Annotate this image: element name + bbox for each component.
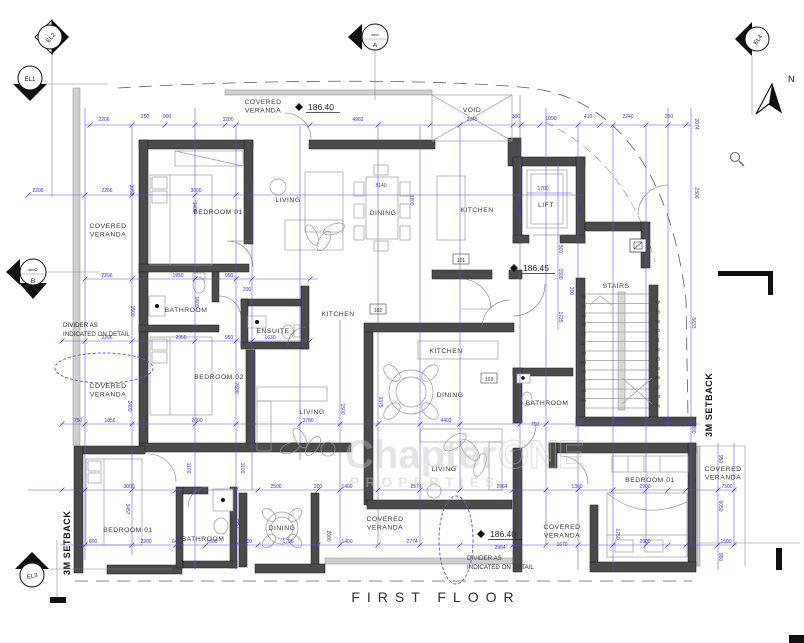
dimension-label: 2950 [175,335,186,341]
room-label: DINING [370,210,397,217]
room-label: DINING [437,392,464,399]
stair-step-number: 10 [581,350,587,355]
room-label: COVEREDVERANDA [244,99,281,115]
dimension-label: 2074 [693,118,699,129]
room-label: COVEREDVERANDA [89,223,126,239]
dimension-label: 2306 [693,187,699,198]
stair-step-number: 13 [581,322,587,327]
dimension-label: 1100 [185,463,191,474]
dimension-label: 250 [141,114,150,120]
dimension-label: 1750 [614,528,620,539]
dimension-labels: 2206250900320049622345300109041022402502… [32,114,732,561]
divider-note: DIVIDER AS [467,555,502,562]
dimension-label: 800 [89,539,98,545]
watermark-part2: ONE [498,433,585,477]
dimension-label: 1600 [193,296,199,307]
room-label: BEDROOM 02 [194,374,244,381]
stair-step-number: 04 [655,403,661,408]
stair-step-number: 08 [581,369,587,374]
section-letter: A [373,42,378,49]
divider-note: INDICATED ON DETAIL [63,331,130,338]
room-label: BEDROOM 01 [103,527,153,534]
dimension-label: 950 [717,553,723,562]
dimension-label: 2000 [191,418,202,424]
setback-label: 3M SETBACK [62,510,72,575]
dimension-label: 200 [314,484,323,490]
stair-step-number: 12 [581,332,587,337]
room-tag: 101 [457,258,466,264]
dimension-label: 750 [576,202,582,211]
dimension-label: 1400 [341,539,352,545]
dimension-label: 500 [557,245,563,254]
stair-step-number: 14 [581,313,587,318]
dimension-label: 1800 [690,422,696,433]
dimension-label: 1500 [720,539,731,545]
divider-note: DIVIDER AS [63,322,98,329]
dimension-label: 3780 [302,418,313,424]
elevation-marker-el2: EL2 [35,20,69,197]
dimension-label: 3000 [190,188,201,194]
stair-step-number: 18 [655,309,661,314]
dimension-label: 1725 [557,311,563,322]
dimension-label: 300 [512,114,521,120]
dimension-label: 1000 [206,539,217,545]
dimension-label: 950 [717,455,723,464]
dimension-label: 750 [74,418,83,424]
dimension-label: 1630 [264,335,275,341]
dimension-label: 3000 [123,484,134,490]
room-tag: 102 [374,308,383,314]
dimension-label: 2650 [614,418,625,424]
dimension-label: 2206 [101,273,112,279]
room-label: KITCHEN [460,207,493,214]
dimension-label: 2240 [622,114,633,120]
room-label: ENSUITE [257,328,290,335]
dimension-label: 3457 [124,503,130,514]
north-label: N [788,74,795,84]
dimension-label: 250 [662,418,671,424]
stair-step-number: 15 [581,303,587,308]
dimension-label: 900 [244,539,253,545]
room-label: BATHROOM [165,307,208,314]
dimension-label: 640 [172,539,181,545]
room-label: KITCHEN [321,311,354,318]
stair-step-number: 09 [581,360,587,365]
dimension-label: 2206 [32,188,43,194]
stair-step-number: 19 [655,319,661,324]
room-label: VOID [463,107,482,114]
section-label: sect [371,32,379,37]
stairs-treads [585,292,652,410]
dimension-label: 6050 [717,500,723,511]
elevation-marker-el1: EL1 [13,66,108,101]
dimension-label: 1360 [571,484,582,490]
watermark-line2: PROPERTIES [350,474,500,490]
level-value: 186.40 [490,529,516,539]
dimension-label: 1500 [557,268,563,279]
room-label: LIVING [275,197,300,204]
section-marker-a: sect A [348,24,388,100]
stair-step-number: 06 [581,388,587,393]
dimension-label: 2506 [270,484,281,490]
dimension-label: 2000 [325,530,331,541]
dimension-label: 3950 [128,184,134,195]
divider-note: INDICATED ON DETAIL [467,564,534,571]
dimension-label: 2774 [406,539,417,545]
stair-step-number: 23 [655,356,661,361]
stair-step-number: 26 [655,385,661,390]
dimension-label: 7600 [233,382,239,393]
dimension-label: 1700 [537,186,548,192]
room-label: DINING [269,525,296,532]
elevation-label: EL1 [25,77,36,83]
frame-corner-marks [698,271,804,643]
dimension-label: 200 [568,287,574,296]
dimension-label: 1090 [545,116,556,122]
room-label: STAIRS [602,283,629,290]
stair-step-number: 24 [655,366,661,371]
setback-label: 3M SETBACK [704,372,714,437]
dimension-label: 3375 [377,396,383,407]
dimension-label: 2345 [466,117,477,123]
dimension-label: 3400 [191,201,197,212]
watermark: Chapter ONE PROPERTIES [345,433,585,490]
floor-plan-drawing: EL2 EL1 EL4 EL3 sect A sect2 B [0,0,804,643]
section-letter: B [31,278,35,285]
dimension-label: 2557 [234,517,240,528]
dimension-label: 1796 [282,539,293,545]
stair-step-number: 16 [581,294,587,299]
dimension-label: 2200 [140,539,151,545]
room-label: LIVING [299,409,324,416]
room-tag: 103 [485,377,494,383]
stair-step-number: 21 [655,338,661,343]
north-arrow-icon: N [756,74,795,114]
dimension-label: 950 [225,335,234,341]
dimension-label: 740 [515,202,521,211]
dimension-label: 1856 [104,418,115,424]
dimension-label: 4403 [440,418,451,424]
room-label: COVEREDVERANDA [366,516,403,532]
dimension-label: 1950 [172,273,183,279]
stair-step-number: 22 [655,347,661,352]
room-label: BEDROOM 01 [625,477,675,484]
stair-step-number: 25 [655,375,661,380]
magnifier-icon [731,153,745,167]
room-label: COVEREDVERANDA [543,524,580,540]
dimension-label: 3200 [222,117,233,123]
stair-step-number: 17 [655,300,661,305]
dimension-label: 5633 [690,317,696,328]
dimension-label: 1500 [339,403,345,414]
dimension-lines [28,95,737,570]
stair-step-number: 20 [655,328,661,333]
dimension-label: 2206 [101,188,112,194]
section-label: sect2 [28,267,38,272]
dimension-label: 4962 [352,117,363,123]
dimension-label: 7500 [721,484,732,490]
room-label: KITCHEN [429,348,462,355]
room-label: COVEREDVERANDA [704,466,741,482]
stair-step-number: 05 [581,397,587,402]
dimension-label: 2206 [98,117,109,123]
drawing-title: FIRST FLOOR [351,589,520,605]
dimension-label: 900 [163,114,172,120]
dimension-label: 200 [243,287,252,293]
level-symbol [295,103,303,111]
level-value: 186.45 [523,263,549,273]
dimension-label: 8140 [375,183,386,189]
level-value: 186.40 [308,102,334,112]
room-label: BEDROOM 01 [193,209,243,216]
dimension-label: 3200 [408,194,414,205]
dimension-label: 2900 [639,484,650,490]
room-label: COVEREDVERANDA [89,383,126,399]
stair-step-number: 03 [655,394,661,399]
room-label: BATHROOM [182,536,225,543]
dimension-label: 410 [584,114,593,120]
stair-step-number: 11 [581,341,586,346]
dimension-label: 1500 [129,305,135,316]
dimension-label: 2400 [126,400,132,411]
room-label: BATHROOM [526,400,569,407]
dimension-label: 2964 [494,545,505,551]
dimension-label: 1670 [556,542,567,548]
dimension-label: 250 [665,114,674,120]
stair-step-number: 07 [581,379,587,384]
panel-symbol [630,239,646,252]
level-symbol [477,530,485,538]
dimension-label: 750 [531,422,540,428]
dimension-label: 950 [225,273,234,279]
room-label: LIFT [538,202,554,209]
dimension-label: 2900 [639,539,650,545]
dimension-label: 1100 [239,463,245,474]
watermark-part1: Chapter [345,433,496,477]
